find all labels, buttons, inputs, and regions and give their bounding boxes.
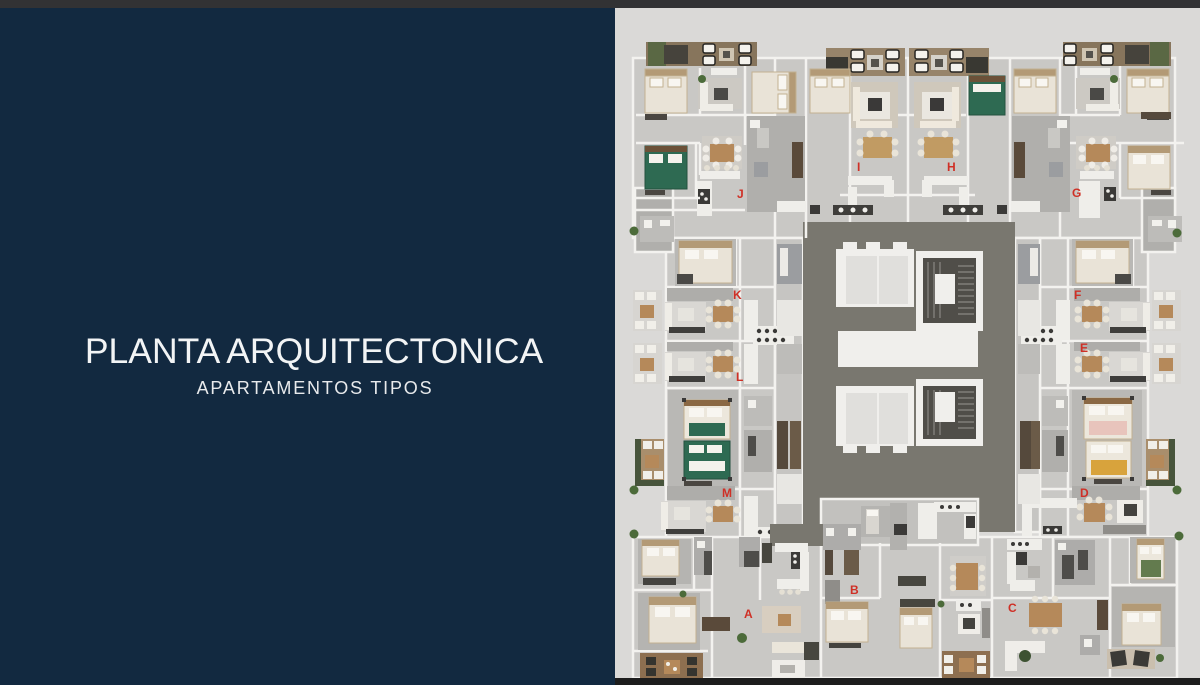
- svg-text:D: D: [1080, 486, 1089, 500]
- svg-text:B: B: [850, 583, 859, 597]
- svg-text:A: A: [744, 607, 753, 621]
- svg-text:J: J: [737, 187, 744, 201]
- svg-text:E: E: [1080, 341, 1088, 355]
- svg-text:K: K: [733, 288, 742, 302]
- svg-text:I: I: [857, 160, 860, 174]
- svg-text:H: H: [947, 160, 956, 174]
- svg-text:L: L: [736, 370, 743, 384]
- svg-text:G: G: [1072, 186, 1081, 200]
- svg-text:F: F: [1074, 288, 1081, 302]
- svg-text:C: C: [1008, 601, 1017, 615]
- svg-text:M: M: [722, 486, 732, 500]
